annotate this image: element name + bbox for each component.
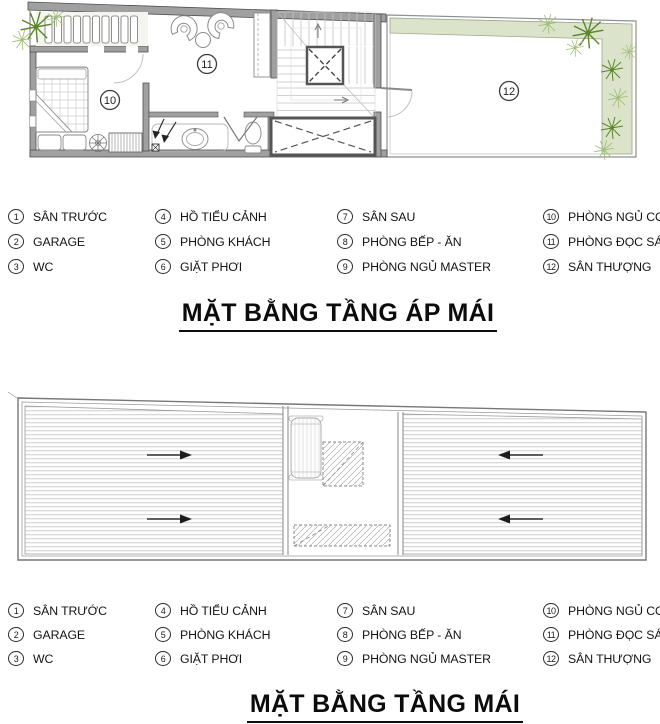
- legend-number-badge: 1: [8, 209, 24, 224]
- skylight-square: [323, 442, 363, 486]
- room-label-12: 12: [500, 82, 519, 101]
- bedroom-door-arc: [114, 54, 143, 83]
- void-opening: [271, 118, 375, 155]
- legend-item: 10PHÒNG NGỦ CON: [543, 602, 660, 619]
- legend-label: PHÒNG KHÁCH: [180, 235, 270, 249]
- legend-number-badge: 4: [155, 603, 171, 618]
- legend-item: 12SÂN THƯỢNG: [543, 650, 651, 667]
- legend-label: SÂN THƯỢNG: [568, 652, 651, 666]
- legend-label: PHÒNG NGỦ CON: [568, 210, 660, 224]
- legend-label: PHÒNG ĐỌC SÁCH: [568, 628, 660, 642]
- floor-plan-sheet: 10 11 12 1SÂN TRƯỚC 2GARAGE 3WC 4HỒ TIỂU…: [0, 0, 660, 724]
- legend-number-badge: 7: [337, 209, 353, 224]
- legend-number-badge: 9: [337, 651, 353, 666]
- legend-item: 5PHÒNG KHÁCH: [155, 233, 270, 250]
- legend-item: 2GARAGE: [8, 233, 85, 250]
- cushions: [38, 135, 86, 150]
- room-label-11: 11: [198, 55, 217, 74]
- legend-item: 7SÂN SAU: [337, 602, 415, 619]
- legend-label: PHÒNG BẾP - ĂN: [362, 235, 462, 249]
- legend-number-badge: 7: [337, 603, 353, 618]
- legend-label: WC: [33, 260, 53, 274]
- legend-item: 7SÂN SAU: [337, 208, 415, 225]
- legend-number-badge: 2: [8, 627, 24, 642]
- legend-label: GIẶT PHƠI: [180, 652, 242, 666]
- legend-label: PHÒNG ĐỌC SÁCH: [568, 235, 660, 249]
- legend-label: SÂN TRƯỚC: [33, 604, 107, 618]
- legend-item: 4HỒ TIỂU CẢNH: [155, 602, 267, 619]
- attic-plan-title: MẶT BẰNG TẦNG ÁP MÁI: [138, 299, 538, 332]
- legend-item: 9PHÒNG NGỦ MASTER: [337, 650, 491, 667]
- legend-number-badge: 5: [155, 627, 171, 642]
- sink-icon: [182, 129, 208, 150]
- toilet-icon: [245, 122, 261, 153]
- roof-plan-title: MẶT BẰNG TẦNG MÁI: [185, 690, 585, 723]
- legend-number-badge: 2: [8, 234, 24, 249]
- legend-item: 6GIẶT PHƠI: [155, 258, 242, 275]
- legend-label: SÂN SAU: [362, 210, 415, 224]
- legend-number-badge: 5: [155, 234, 171, 249]
- legend-label: GIẶT PHƠI: [180, 260, 242, 274]
- skylight-long: [294, 525, 390, 546]
- legend-number-badge: 3: [8, 651, 24, 666]
- legend-item: 11PHÒNG ĐỌC SÁCH: [543, 233, 660, 250]
- legend-item: 1SÂN TRƯỚC: [8, 208, 107, 225]
- room-label-10: 10: [101, 91, 120, 110]
- legend-number-badge: 11: [543, 627, 559, 642]
- legend-label: PHÒNG NGỦ MASTER: [362, 652, 491, 666]
- legend-label: PHÒNG KHÁCH: [180, 628, 270, 642]
- roof-panel-right: [403, 414, 642, 554]
- legend-number-badge: 10: [543, 603, 559, 618]
- legend-number-badge: 4: [155, 209, 171, 224]
- legend-number-badge: 12: [543, 651, 559, 666]
- svg-text:11: 11: [201, 59, 212, 71]
- attic-floor-plan-drawing: 10 11 12: [0, 0, 660, 192]
- legend-number-badge: 6: [155, 651, 171, 666]
- legend-label: PHÒNG BẾP - ĂN: [362, 628, 462, 642]
- legend-label: HỒ TIỂU CẢNH: [180, 210, 267, 224]
- legend-item: 11PHÒNG ĐỌC SÁCH: [543, 626, 660, 643]
- roof-panel-left: [25, 406, 283, 554]
- legend-label: WC: [33, 652, 53, 666]
- staircase: [277, 12, 375, 118]
- legend-item: 8PHÒNG BẾP - ĂN: [337, 233, 462, 250]
- legend-number-badge: 11: [543, 234, 559, 249]
- legend-label: HỒ TIỂU CẢNH: [180, 604, 267, 618]
- legend-number-badge: 6: [155, 259, 171, 274]
- legend-item: 9PHÒNG NGỦ MASTER: [337, 258, 491, 275]
- bathroom: [152, 117, 261, 153]
- legend-number-badge: 8: [337, 234, 353, 249]
- roof-plan-drawing: [0, 358, 660, 570]
- legend-label: SÂN THƯỢNG: [568, 260, 651, 274]
- legend-attic: 1SÂN TRƯỚC 2GARAGE 3WC 4HỒ TIỂU CẢNH 5PH…: [0, 208, 660, 280]
- legend-roof: 1SÂN TRƯỚC 2GARAGE 3WC 4HỒ TIỂU CẢNH 5PH…: [0, 602, 660, 674]
- legend-item: 4HỒ TIỂU CẢNH: [155, 208, 267, 225]
- legend-item: 8PHÒNG BẾP - ĂN: [337, 626, 462, 643]
- bed: [36, 67, 88, 132]
- legend-label: PHÒNG NGỦ CON: [568, 604, 660, 618]
- legend-item: 3WC: [8, 650, 53, 667]
- legend-item: 5PHÒNG KHÁCH: [155, 626, 270, 643]
- legend-label: GARAGE: [33, 628, 85, 642]
- legend-item: 3WC: [8, 258, 53, 275]
- legend-number-badge: 3: [8, 259, 24, 274]
- legend-item: 12SÂN THƯỢNG: [543, 258, 651, 275]
- bookshelf: [254, 13, 270, 77]
- stair-void: [307, 47, 343, 84]
- legend-number-badge: 9: [337, 259, 353, 274]
- legend-label: PHÒNG NGỦ MASTER: [362, 260, 491, 274]
- water-tank: [289, 416, 323, 480]
- legend-item: 2GARAGE: [8, 626, 85, 643]
- svg-text:10: 10: [104, 95, 116, 107]
- legend-item: 10PHÒNG NGỦ CON: [543, 208, 660, 225]
- svg-text:12: 12: [503, 86, 515, 98]
- legend-label: SÂN TRƯỚC: [33, 210, 107, 224]
- legend-label: GARAGE: [33, 235, 85, 249]
- legend-number-badge: 1: [8, 603, 24, 618]
- fan-icon: [90, 135, 107, 152]
- legend-item: 6GIẶT PHƠI: [155, 650, 242, 667]
- legend-number-badge: 10: [543, 209, 559, 224]
- legend-label: SÂN SAU: [362, 604, 415, 618]
- legend-item: 1SÂN TRƯỚC: [8, 602, 107, 619]
- louver-screen: [36, 12, 148, 46]
- legend-number-badge: 12: [543, 259, 559, 274]
- wardrobe: [109, 133, 142, 152]
- legend-number-badge: 8: [337, 627, 353, 642]
